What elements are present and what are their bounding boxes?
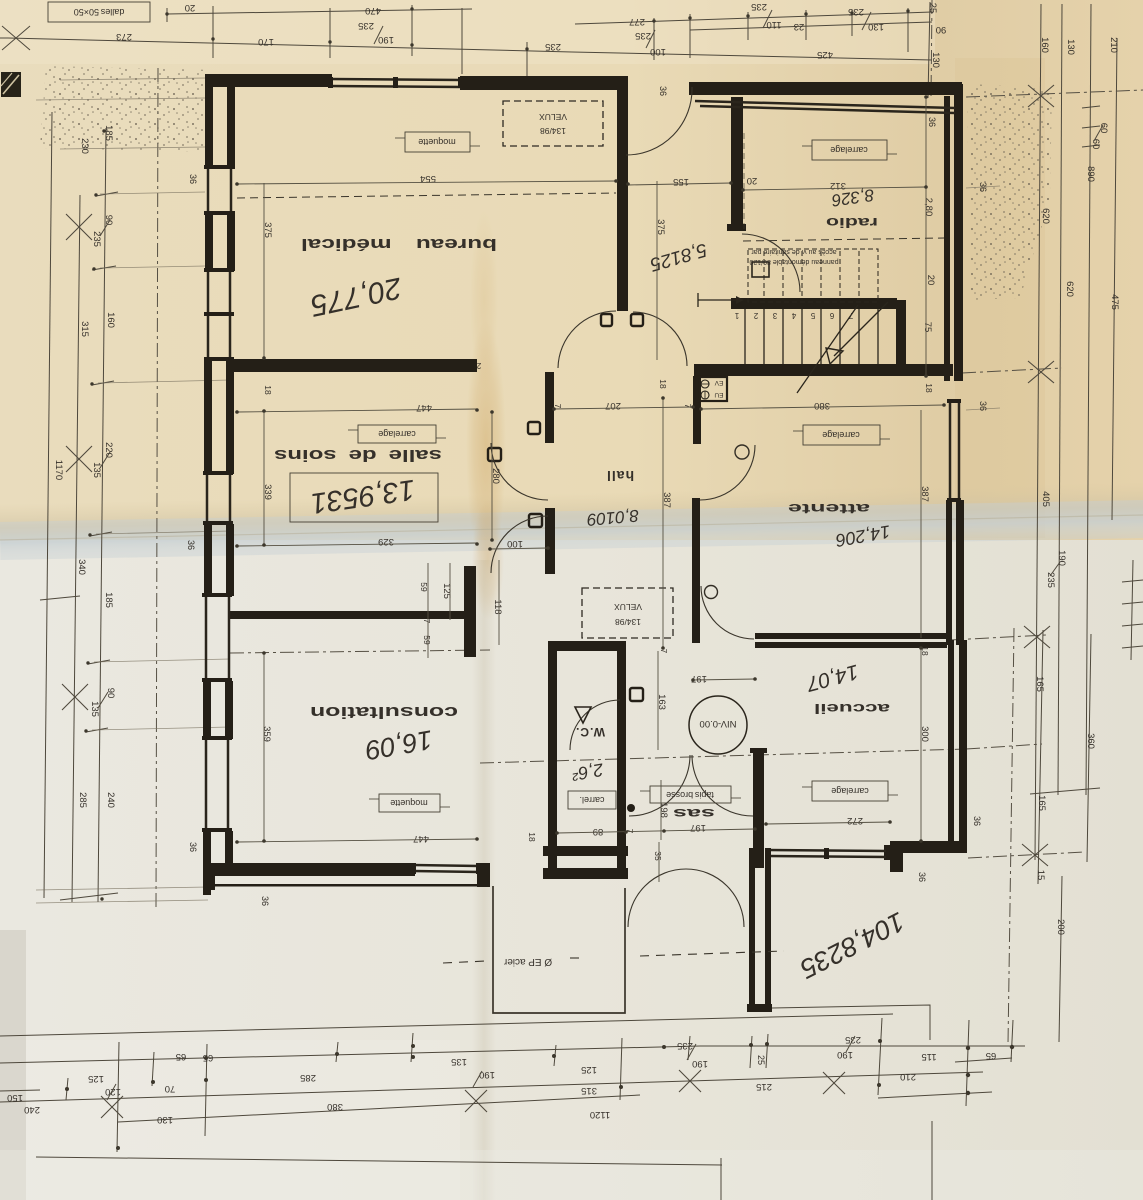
svg-text:35: 35 xyxy=(653,851,663,861)
svg-text:125: 125 xyxy=(88,1073,104,1084)
svg-text:210: 210 xyxy=(1108,37,1119,53)
svg-text:235: 235 xyxy=(635,30,651,41)
svg-text:240: 240 xyxy=(105,792,116,808)
svg-text:18: 18 xyxy=(263,385,273,395)
svg-text:20: 20 xyxy=(185,2,196,13)
svg-text:65: 65 xyxy=(203,1052,214,1063)
svg-text:360: 360 xyxy=(1085,733,1096,749)
svg-text:25: 25 xyxy=(927,3,938,14)
svg-text:220: 220 xyxy=(103,442,114,458)
svg-text:165: 165 xyxy=(1036,795,1047,811)
svg-text:2: 2 xyxy=(476,361,481,370)
svg-text:1120: 1120 xyxy=(590,1109,610,1120)
svg-text:120: 120 xyxy=(105,1086,121,1097)
svg-text:100: 100 xyxy=(507,538,523,549)
svg-text:315: 315 xyxy=(79,321,90,337)
svg-text:240: 240 xyxy=(24,1104,40,1115)
svg-text:90: 90 xyxy=(103,215,114,226)
svg-text:7: 7 xyxy=(683,404,692,409)
svg-text:198: 198 xyxy=(658,802,669,818)
svg-text:447: 447 xyxy=(413,833,429,844)
svg-text:235: 235 xyxy=(677,1040,693,1051)
svg-text:160: 160 xyxy=(105,312,116,328)
svg-text:130: 130 xyxy=(157,1114,173,1125)
svg-text:EV: EV xyxy=(714,379,723,386)
svg-text:89: 89 xyxy=(593,826,604,837)
svg-text:36: 36 xyxy=(972,816,982,826)
svg-text:18: 18 xyxy=(658,379,668,389)
svg-text:475: 475 xyxy=(1109,294,1120,310)
svg-text:2,80: 2,80 xyxy=(923,198,934,217)
svg-text:125: 125 xyxy=(581,1064,597,1075)
svg-text:200: 200 xyxy=(1055,919,1066,935)
svg-text:36: 36 xyxy=(188,842,198,852)
svg-text:dalles 50×50: dalles 50×50 xyxy=(74,7,125,17)
svg-text:1170: 1170 xyxy=(53,460,64,480)
svg-text:EU: EU xyxy=(714,391,723,398)
svg-text:65: 65 xyxy=(176,1051,187,1062)
svg-text:tapis brosse: tapis brosse xyxy=(666,790,714,800)
svg-text:VELUX: VELUX xyxy=(614,602,642,612)
svg-text:165: 165 xyxy=(1034,676,1045,692)
svg-text:3: 3 xyxy=(772,311,777,320)
svg-text:65: 65 xyxy=(986,1050,997,1061)
svg-text:470: 470 xyxy=(365,5,381,16)
svg-text:36: 36 xyxy=(978,401,988,411)
svg-text:20: 20 xyxy=(747,175,758,186)
svg-text:100: 100 xyxy=(650,46,666,57)
svg-text:carrelage: carrelage xyxy=(378,429,416,439)
svg-text:277: 277 xyxy=(629,16,645,27)
svg-text:130: 130 xyxy=(868,21,884,32)
svg-text:36: 36 xyxy=(186,540,196,550)
svg-text:18: 18 xyxy=(527,832,537,842)
svg-text:20: 20 xyxy=(925,275,936,286)
svg-text:36: 36 xyxy=(658,86,668,96)
svg-text:hall: hall xyxy=(606,468,634,484)
svg-text:235: 235 xyxy=(91,231,102,247)
svg-text:59: 59 xyxy=(422,635,432,645)
svg-text:134/98: 134/98 xyxy=(615,617,641,627)
svg-text:130: 130 xyxy=(930,52,941,68)
svg-text:carrelage: carrelage xyxy=(822,430,860,440)
svg-text:312: 312 xyxy=(830,180,846,191)
svg-text:VELUX: VELUX xyxy=(539,112,567,122)
svg-text:235: 235 xyxy=(358,20,374,31)
svg-text:75: 75 xyxy=(922,322,933,333)
svg-text:425: 425 xyxy=(817,49,833,60)
svg-text:190: 190 xyxy=(692,1058,708,1069)
svg-text:36: 36 xyxy=(978,182,988,192)
svg-text:Ø EP acier: Ø EP acier xyxy=(503,956,552,967)
svg-text:890: 890 xyxy=(1085,166,1096,182)
svg-text:70: 70 xyxy=(165,1083,176,1094)
svg-text:185: 185 xyxy=(103,125,114,141)
svg-text:panneau démontable 80/120: panneau démontable 80/120 xyxy=(749,258,838,265)
svg-text:110: 110 xyxy=(766,19,781,30)
svg-text:329: 329 xyxy=(378,536,394,547)
svg-text:bureau médical: bureau médical xyxy=(301,235,497,254)
svg-text:285: 285 xyxy=(77,792,88,808)
svg-text:135: 135 xyxy=(89,701,100,717)
svg-text:36: 36 xyxy=(188,174,198,184)
svg-text:attente: attente xyxy=(788,501,870,517)
svg-text:447: 447 xyxy=(416,402,432,413)
svg-text:170: 170 xyxy=(258,36,274,47)
svg-text:190: 190 xyxy=(479,1069,495,1080)
svg-text:5: 5 xyxy=(810,311,815,320)
svg-text:carrelage: carrelage xyxy=(830,145,868,155)
svg-text:235: 235 xyxy=(848,6,864,17)
svg-text:NIV-0.00: NIV-0.00 xyxy=(700,718,737,729)
svg-text:59: 59 xyxy=(419,582,429,592)
svg-text:radio: radio xyxy=(826,215,878,231)
svg-text:118: 118 xyxy=(492,599,503,614)
svg-text:340: 340 xyxy=(76,559,87,575)
svg-text:90: 90 xyxy=(936,24,947,35)
svg-text:accueil: accueil xyxy=(814,701,890,717)
svg-text:285: 285 xyxy=(300,1072,316,1083)
svg-text:salle de soins: salle de soins xyxy=(274,446,442,465)
svg-text:210: 210 xyxy=(900,1071,916,1082)
svg-text:135: 135 xyxy=(451,1056,467,1067)
svg-text:380: 380 xyxy=(327,1101,343,1112)
svg-text:197: 197 xyxy=(690,822,706,833)
svg-text:359: 359 xyxy=(261,726,272,742)
svg-text:carrel.: carrel. xyxy=(579,795,604,805)
svg-text:190: 190 xyxy=(1056,550,1067,566)
svg-text:115: 115 xyxy=(921,1051,936,1062)
svg-text:160: 160 xyxy=(1039,37,1050,53)
svg-text:130: 130 xyxy=(1065,39,1076,55)
svg-text:207: 207 xyxy=(605,400,621,411)
svg-text:405: 405 xyxy=(1040,491,1051,507)
svg-text:6: 6 xyxy=(829,311,834,320)
svg-text:7: 7 xyxy=(422,619,431,624)
svg-text:60: 60 xyxy=(1090,139,1101,150)
svg-text:134/98: 134/98 xyxy=(540,126,566,136)
svg-text:moquette: moquette xyxy=(418,137,456,147)
svg-text:272: 272 xyxy=(847,815,863,826)
svg-text:36: 36 xyxy=(927,117,937,127)
svg-text:235: 235 xyxy=(751,1,767,12)
svg-text:230: 230 xyxy=(79,138,90,154)
svg-text:36: 36 xyxy=(917,872,927,882)
svg-text:150: 150 xyxy=(7,1092,23,1103)
svg-text:25: 25 xyxy=(756,1055,766,1065)
svg-text:moquette: moquette xyxy=(390,798,428,808)
svg-text:36: 36 xyxy=(260,896,270,906)
svg-text:155: 155 xyxy=(673,176,689,187)
svg-text:273: 273 xyxy=(116,31,132,42)
svg-text:carrelage: carrelage xyxy=(831,786,869,796)
svg-text:23: 23 xyxy=(794,21,805,32)
svg-text:620: 620 xyxy=(1064,281,1075,297)
svg-text:sas: sas xyxy=(673,806,715,822)
svg-text:190: 190 xyxy=(378,34,394,45)
svg-text:380: 380 xyxy=(814,400,830,411)
svg-text:consultation: consultation xyxy=(310,703,458,722)
svg-text:15: 15 xyxy=(1035,870,1046,881)
svg-text:215: 215 xyxy=(756,1081,772,1092)
svg-text:90: 90 xyxy=(105,688,116,699)
svg-text:235: 235 xyxy=(545,41,561,52)
svg-text:185: 185 xyxy=(103,592,114,608)
svg-text:315: 315 xyxy=(581,1085,597,1096)
svg-text:1: 1 xyxy=(734,311,739,320)
svg-text:accès au vi de sanitaire par: accès au vi de sanitaire par xyxy=(751,248,837,255)
svg-text:7: 7 xyxy=(848,311,853,320)
svg-text:4: 4 xyxy=(791,311,796,320)
svg-text:620: 620 xyxy=(1040,208,1051,224)
svg-text:18: 18 xyxy=(924,383,934,393)
svg-text:135: 135 xyxy=(91,462,102,478)
svg-text:2: 2 xyxy=(753,311,758,320)
svg-text:190: 190 xyxy=(837,1049,853,1060)
svg-text:W.C.: W.C. xyxy=(575,725,605,739)
